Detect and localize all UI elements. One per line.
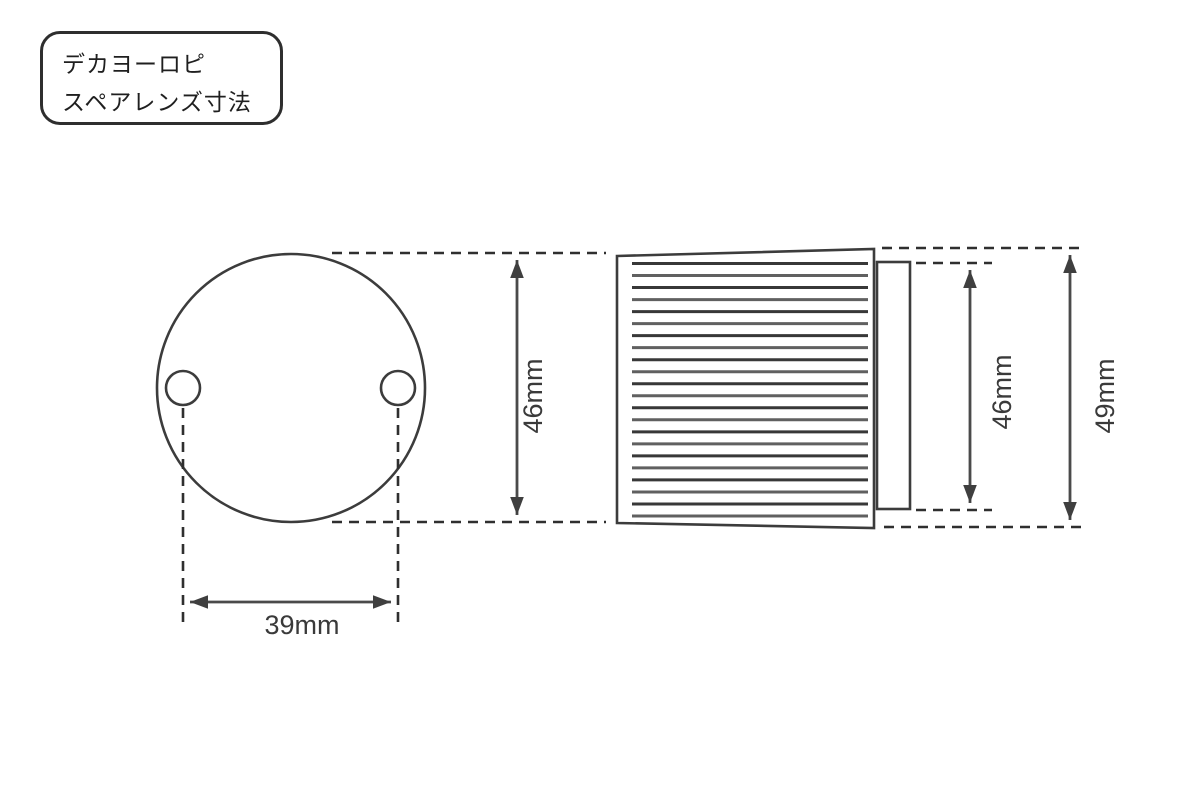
dim-label-46mm-front: 46mm [518, 358, 548, 433]
dim-label-39mm: 39mm [264, 610, 339, 640]
lens-rear-base [877, 262, 910, 509]
diagram-canvas: デカヨーロピ スペアレンズ寸法 39mm 46mm [0, 0, 1200, 800]
dim-label-49mm: 49mm [1090, 358, 1120, 433]
mounting-hole-left [166, 371, 200, 405]
dim-label-46mm-rear: 46mm [987, 354, 1017, 429]
lens-side-body [617, 249, 874, 528]
dimension-drawing: 39mm 46mm 46mm 49mm [0, 0, 1200, 800]
mounting-hole-right [381, 371, 415, 405]
